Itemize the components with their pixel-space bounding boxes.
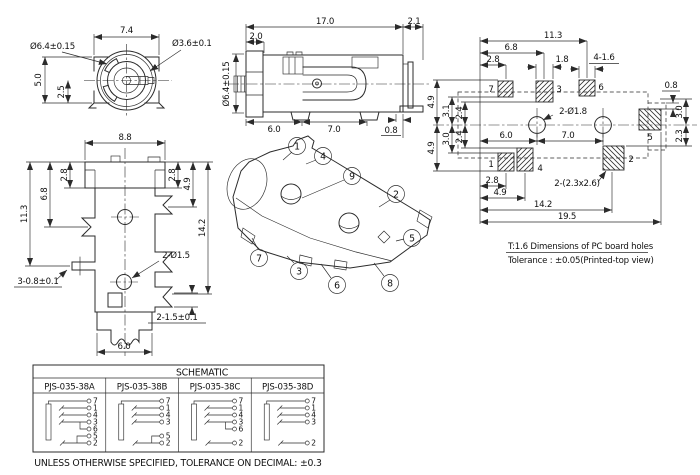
variant-name-38a: PJS-035-38A	[44, 383, 95, 393]
dim-pcb-4-9-lower: 4.9	[493, 188, 506, 198]
dim-bottom-14-2: 14.2	[198, 219, 208, 237]
callout-8-label: 8	[387, 279, 393, 290]
pin-label: 2	[311, 439, 316, 448]
dim-pcb-2-8-bottom: 2.8	[485, 176, 498, 186]
pad-number-5: 5	[647, 133, 652, 143]
dim-front-half: 2.5	[57, 85, 67, 98]
dim-side-length: 17.0	[316, 17, 334, 27]
engineering-drawing: 7.4 Ø6.4±0.15 Ø3.6±0.1 5.0 2.5	[0, 0, 700, 475]
note-line1: T:1.6 Dimensions of PC board holes	[507, 242, 654, 252]
dim-pcb-2-3: 2.3	[675, 129, 685, 142]
dim-pcb-2-4-b: 2.4	[455, 130, 465, 143]
pin-label: 3	[311, 418, 316, 427]
dim-pcb-pads: 2-(2.3x2.6)	[554, 179, 600, 189]
dim-pcb-19-5: 19.5	[558, 212, 576, 222]
dim-pcb-7-0: 7.0	[561, 131, 574, 141]
pin-label: 3	[166, 418, 171, 427]
dim-pcb-slots: 4-1.6	[593, 53, 614, 63]
callout-3-label: 3	[296, 267, 302, 278]
dim-side-foot1: 6.0	[267, 125, 280, 135]
pin-label: 2	[166, 439, 171, 448]
dim-front-width: 7.4	[120, 26, 133, 36]
callout-9-label: 9	[349, 172, 355, 183]
pin-label: 6	[239, 425, 244, 434]
callout-6-label: 6	[334, 281, 340, 292]
dim-pcb-holes: 2-Ø1.8	[559, 106, 587, 117]
dim-pcb-6-0: 6.0	[499, 131, 512, 141]
pad-number-2: 2	[628, 155, 633, 165]
dim-bottom-11-3: 11.3	[20, 205, 30, 223]
dim-bottom-2-8-left: 2.8	[60, 168, 70, 181]
schematic-title: SCHEMATIC	[176, 368, 228, 379]
pin-label: 2	[239, 439, 244, 448]
callout-1-label: 1	[294, 142, 300, 153]
dim-pcb-0-8: 0.8	[664, 81, 677, 91]
dim-side-barrel-dia: Ø6.4±0.15	[221, 62, 232, 107]
dim-bottom-2-8-right: 2.8	[168, 168, 178, 181]
dim-front-outer-dia: Ø6.4±0.15	[30, 41, 75, 52]
dim-pcb-3-0-left: 3.0	[442, 132, 452, 145]
dim-pcb-4-9-top: 4.9	[427, 95, 437, 108]
dim-side-pin: 2.1	[407, 17, 420, 27]
callout-7-label: 7	[256, 254, 262, 265]
dim-front-height: 5.0	[34, 73, 44, 86]
pad-number-1: 1	[488, 160, 493, 170]
pin-label: 2	[93, 439, 98, 448]
dim-pcb-1-8: 1.8	[555, 55, 568, 65]
dim-side-foot2: 7.0	[327, 125, 340, 135]
callout-5-label: 5	[409, 234, 415, 245]
pad-number-6: 6	[598, 83, 603, 93]
callout-2-label: 2	[393, 190, 399, 201]
pad-number-7: 7	[488, 85, 493, 95]
dim-bottom-pins-right: 2-1.5±0.1	[156, 313, 197, 323]
pad-number-4: 4	[537, 164, 542, 174]
dim-pcb-11-3: 11.3	[544, 31, 562, 41]
drawing-sheet: 7.4 Ø6.4±0.15 Ø3.6±0.1 5.0 2.5	[0, 0, 700, 475]
variant-name-38c: PJS-035-38C	[190, 383, 241, 393]
dim-pcb-6-8: 6.8	[504, 43, 517, 53]
dim-bottom-4-9: 4.9	[183, 177, 193, 190]
variant-name-38d: PJS-035-38D	[262, 383, 314, 393]
pad-number-3: 3	[556, 85, 561, 95]
dim-pcb-2-8-top: 2.8	[486, 55, 499, 65]
dim-pcb-2-4-a: 2.4	[455, 106, 465, 119]
dim-bottom-8-8: 8.8	[118, 133, 131, 143]
dim-pcb-3-1: 3.1	[442, 104, 452, 117]
callout-4-label: 4	[320, 152, 326, 163]
dim-pcb-14-2: 14.2	[534, 200, 552, 210]
footer-note: UNLESS OTHERWISE SPECIFIED, TOLERANCE ON…	[34, 458, 322, 469]
note-line2: Tolerance : ±0.05(Printed-top view)	[507, 256, 654, 266]
dim-side-flange: 2.0	[249, 32, 262, 42]
variant-name-38b: PJS-035-38B	[117, 383, 168, 393]
dim-pcb-4-9-bot: 4.9	[427, 141, 437, 154]
dim-side-foot-w: 0.8	[384, 126, 397, 136]
dim-pcb-3-0-right: 3.0	[675, 105, 685, 118]
dim-front-pin-dia: Ø3.6±0.1	[172, 38, 212, 49]
dim-bottom-6-0: 6.0	[117, 342, 130, 352]
dim-bottom-6-8: 6.8	[40, 187, 50, 200]
dim-bottom-holes: 2-Ø1.5	[162, 250, 190, 261]
dim-bottom-pins-left: 3-0.8±0.1	[17, 277, 58, 287]
